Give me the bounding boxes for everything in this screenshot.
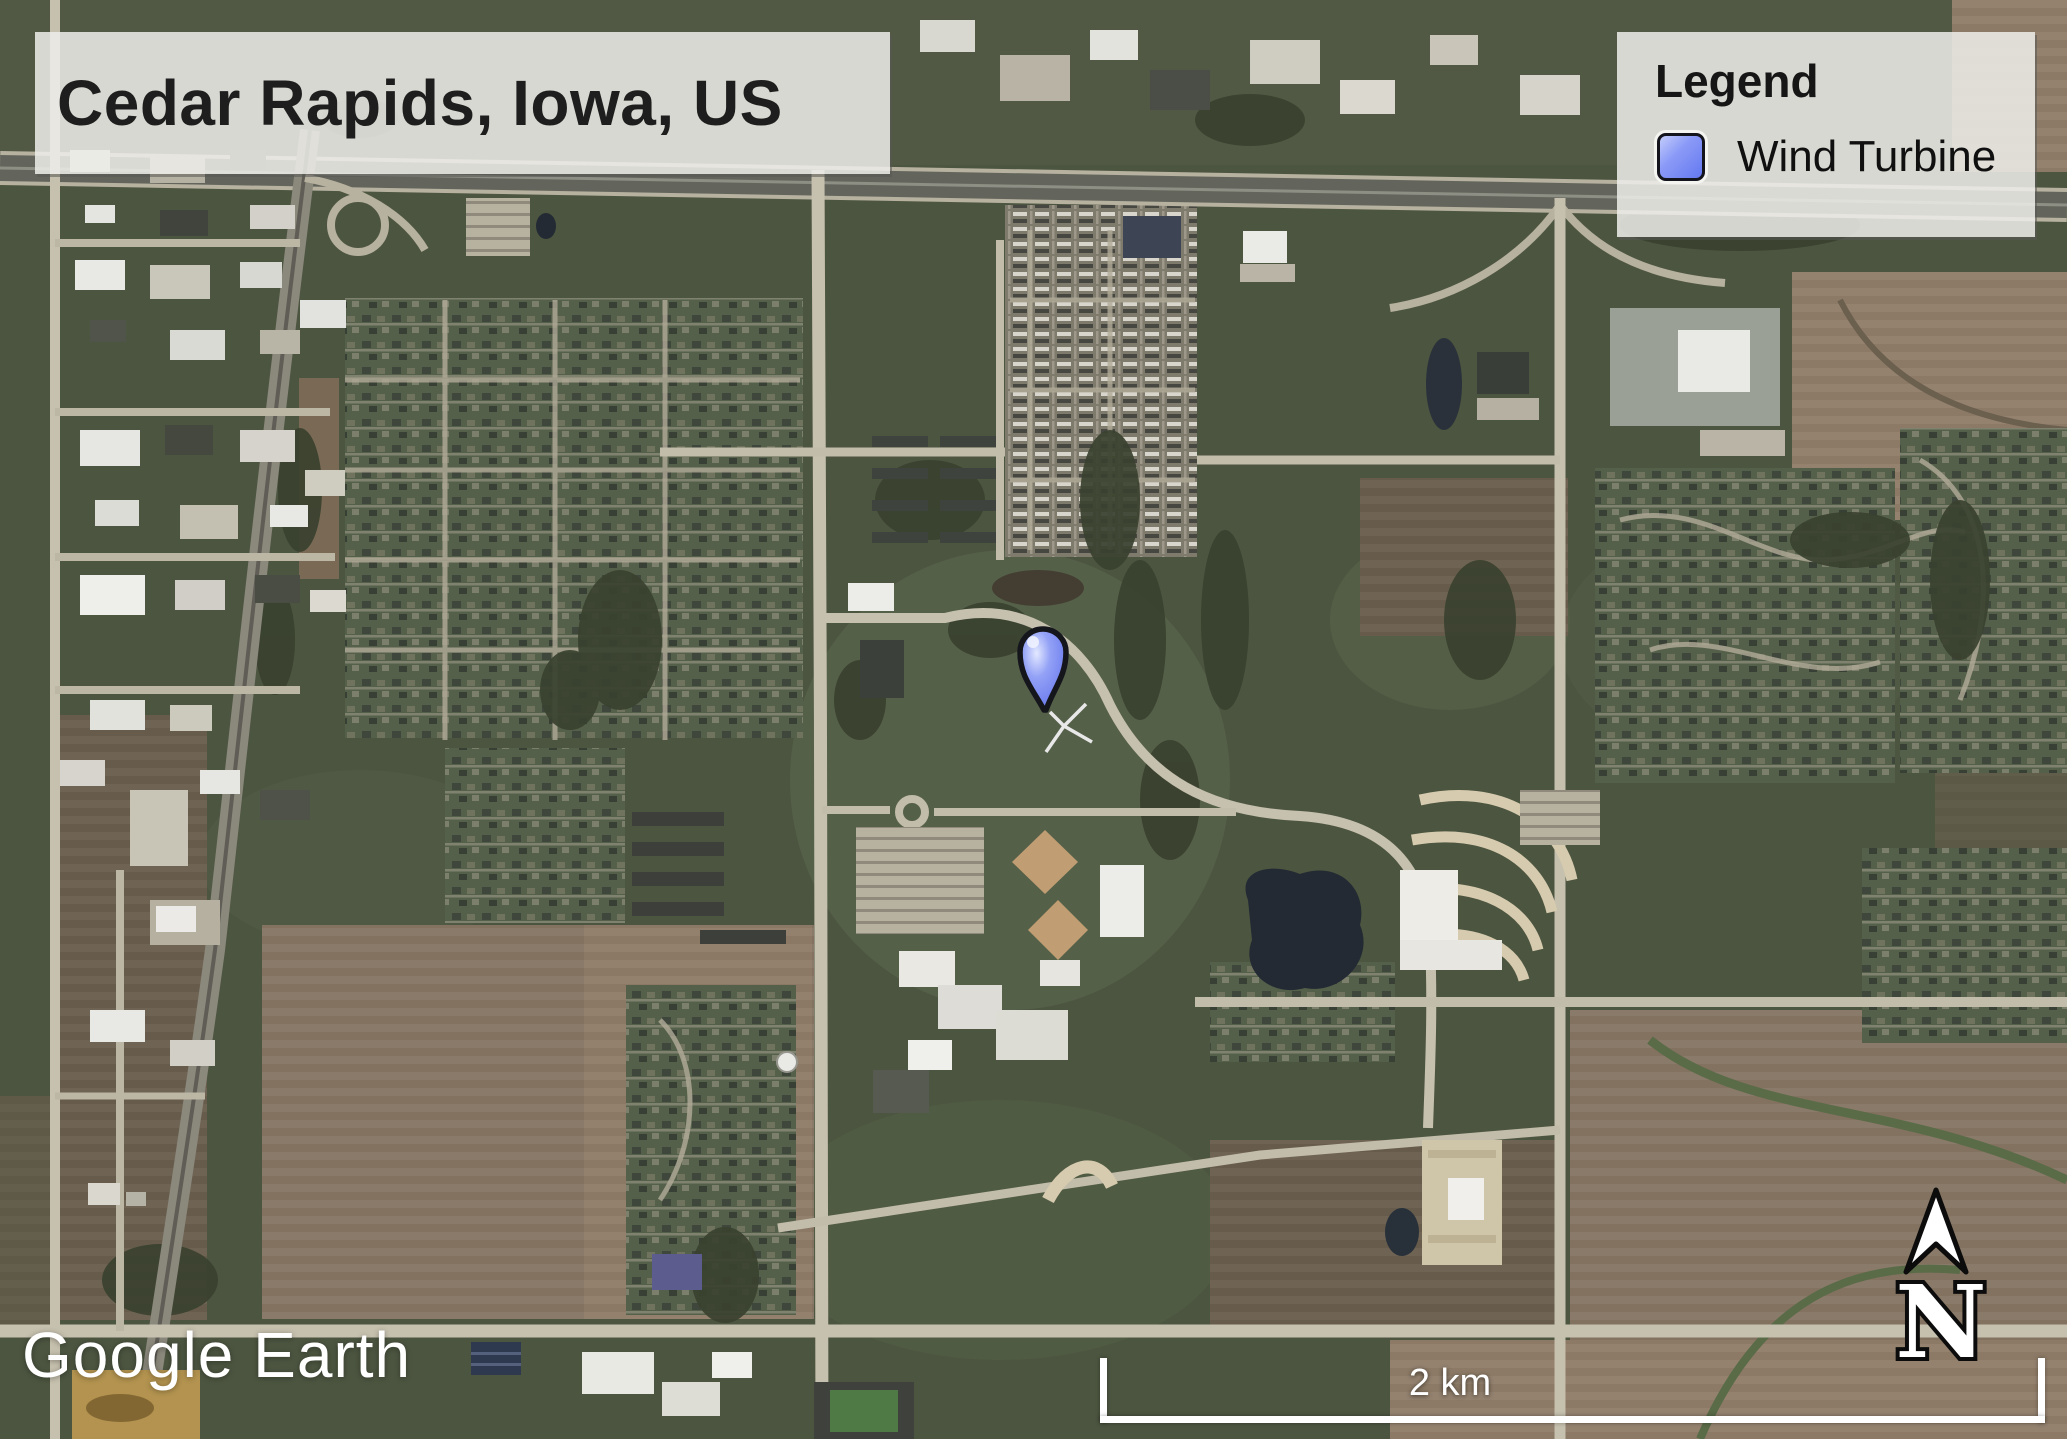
legend-item-wind-turbine: Wind Turbine	[1657, 132, 2035, 182]
field	[0, 1096, 55, 1331]
lake	[1246, 869, 1364, 990]
map-viewport: Cedar Rapids, Iowa, US Legend Wind Turbi…	[0, 0, 2067, 1439]
rec-center	[1100, 865, 1144, 937]
google-earth-watermark: Google Earth	[22, 1318, 411, 1392]
truck-lot	[466, 198, 530, 256]
solar-array	[471, 1342, 521, 1375]
legend-title: Legend	[1655, 54, 2035, 108]
legend-item-label: Wind Turbine	[1737, 132, 1996, 182]
blue-roof-building	[1123, 216, 1181, 258]
campus-parking	[856, 827, 984, 934]
church-building	[1243, 231, 1287, 263]
wind-turbine-legend-icon	[1657, 133, 1705, 181]
purple-roof-building	[652, 1254, 702, 1290]
pond	[1385, 1208, 1419, 1256]
water-tower	[777, 1052, 797, 1072]
north-arrow: N	[1878, 1176, 2008, 1376]
north-arrow-glyph	[1906, 1190, 1966, 1272]
scale-bar	[1100, 1416, 2045, 1423]
scale-bar-right-tick	[2038, 1358, 2045, 1423]
north-label: N	[1895, 1263, 1986, 1376]
field	[1210, 1140, 1560, 1330]
scale-bar-label: 2 km	[1340, 1362, 1560, 1405]
map-title: Cedar Rapids, Iowa, US	[35, 66, 783, 140]
road	[818, 170, 822, 1439]
stadium	[814, 1382, 914, 1439]
map-title-card: Cedar Rapids, Iowa, US	[35, 32, 890, 174]
pond	[992, 570, 1084, 606]
subdivision	[445, 748, 625, 923]
pond	[536, 213, 556, 239]
institutional-complex	[1422, 1140, 1502, 1265]
scale-bar-left-tick	[1100, 1358, 1107, 1423]
subdivision	[1862, 848, 2067, 1043]
legend-panel: Legend Wind Turbine	[1617, 32, 2035, 237]
pond	[1426, 338, 1462, 430]
